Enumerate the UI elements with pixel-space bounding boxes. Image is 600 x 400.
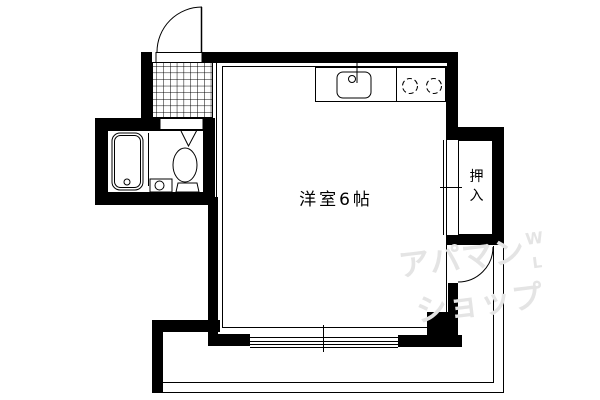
wall-bath-top — [95, 118, 160, 130]
wall-closet-right — [492, 127, 504, 245]
floorplan-canvas: 洋室6帖 押入 アパマン ショップ W L — [0, 0, 600, 400]
watermark-mark-bottom: L — [532, 255, 543, 271]
wall-bath-bottom — [95, 193, 215, 205]
bathroom-door-icon — [160, 119, 203, 130]
wall-bath-right — [203, 118, 215, 205]
kitchen — [316, 62, 446, 102]
wall-top — [202, 52, 458, 63]
washbasin-icon — [150, 179, 172, 192]
wall-right-upper — [447, 52, 458, 130]
watermark-mark-top: W — [525, 230, 544, 248]
wall-bath-left — [95, 118, 107, 205]
sliding-window-icon — [250, 325, 398, 352]
watermark-line2: ショップ — [415, 275, 593, 327]
stove-burners-icon — [403, 79, 442, 94]
entrance-door-icon — [156, 7, 202, 63]
bathroom-door-swing-icon — [181, 130, 197, 146]
wall-bottom-left — [208, 334, 250, 346]
closet-label: 押入 — [468, 168, 485, 206]
watermark-logo: アパマン ショップ W L — [394, 221, 596, 353]
room-label: 洋室6帖 — [256, 185, 416, 210]
genkan-tile-icon — [153, 63, 213, 118]
wall-balcony-left — [152, 320, 163, 393]
wall-room-left — [208, 197, 218, 334]
kitchen-counter — [316, 68, 446, 102]
bathtub-icon — [112, 133, 143, 190]
toilet-icon — [173, 148, 199, 192]
wall-genkan-left — [141, 52, 152, 118]
